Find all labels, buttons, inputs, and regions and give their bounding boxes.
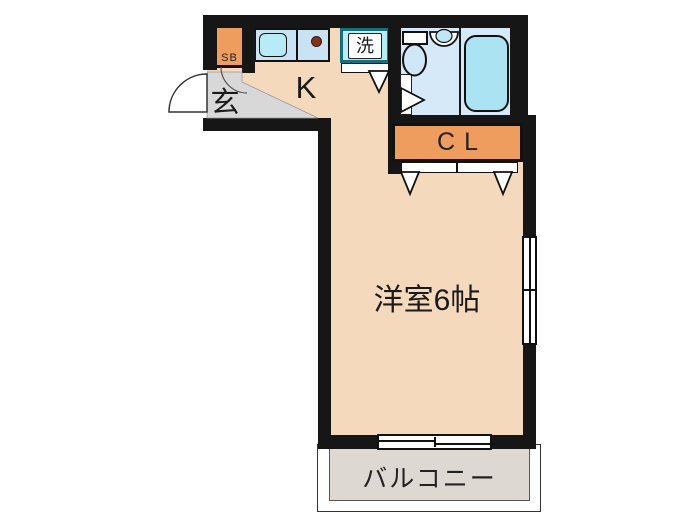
wall-right-lower (523, 345, 536, 449)
wall-main-left (318, 118, 331, 449)
floor-plan: バルコニー SB 洗 CL (0, 0, 700, 525)
closet-door-tick (456, 162, 458, 173)
toilet-tank (402, 31, 428, 45)
kitchen-sink (259, 33, 287, 57)
sliding-sash-left (379, 440, 436, 442)
kitchen-label: K (280, 71, 332, 105)
entrance-door-swing (169, 74, 207, 112)
shoe-box: SB (217, 28, 242, 68)
wall-left-upper (203, 15, 217, 70)
wall-right-middle (523, 115, 536, 236)
washer-door-sill (341, 63, 389, 73)
closet-label: CL (428, 128, 487, 157)
wall-right-upper (510, 15, 528, 127)
closet: CL (392, 123, 523, 162)
window-meeting-rail (522, 289, 537, 291)
sash-meeting-tick (434, 437, 436, 447)
stove-burner (311, 36, 322, 47)
wall-genkan-divider (242, 15, 255, 73)
window-balcony-door (377, 434, 492, 450)
wall-bottom-right (492, 435, 536, 449)
balcony-label: バルコニー (362, 453, 497, 495)
entrance-label: 玄 (206, 87, 244, 119)
window-right (522, 236, 537, 345)
wall-entry-bottom (203, 118, 331, 131)
washing-machine-label: 洗 (356, 37, 374, 55)
counter-divider (296, 28, 298, 62)
main-room-label: 洋室6帖 (331, 284, 523, 318)
wall-bottom-left (318, 435, 377, 449)
bathtub (464, 35, 509, 112)
closet-door-track (401, 162, 518, 173)
bathroom-partition (459, 28, 461, 115)
washing-machine: 洗 (348, 33, 382, 59)
sliding-sash-right (434, 443, 490, 445)
balcony-area: バルコニー (329, 446, 530, 501)
bathroom-door-sill (400, 74, 412, 115)
shoe-box-label: SB (221, 51, 238, 65)
